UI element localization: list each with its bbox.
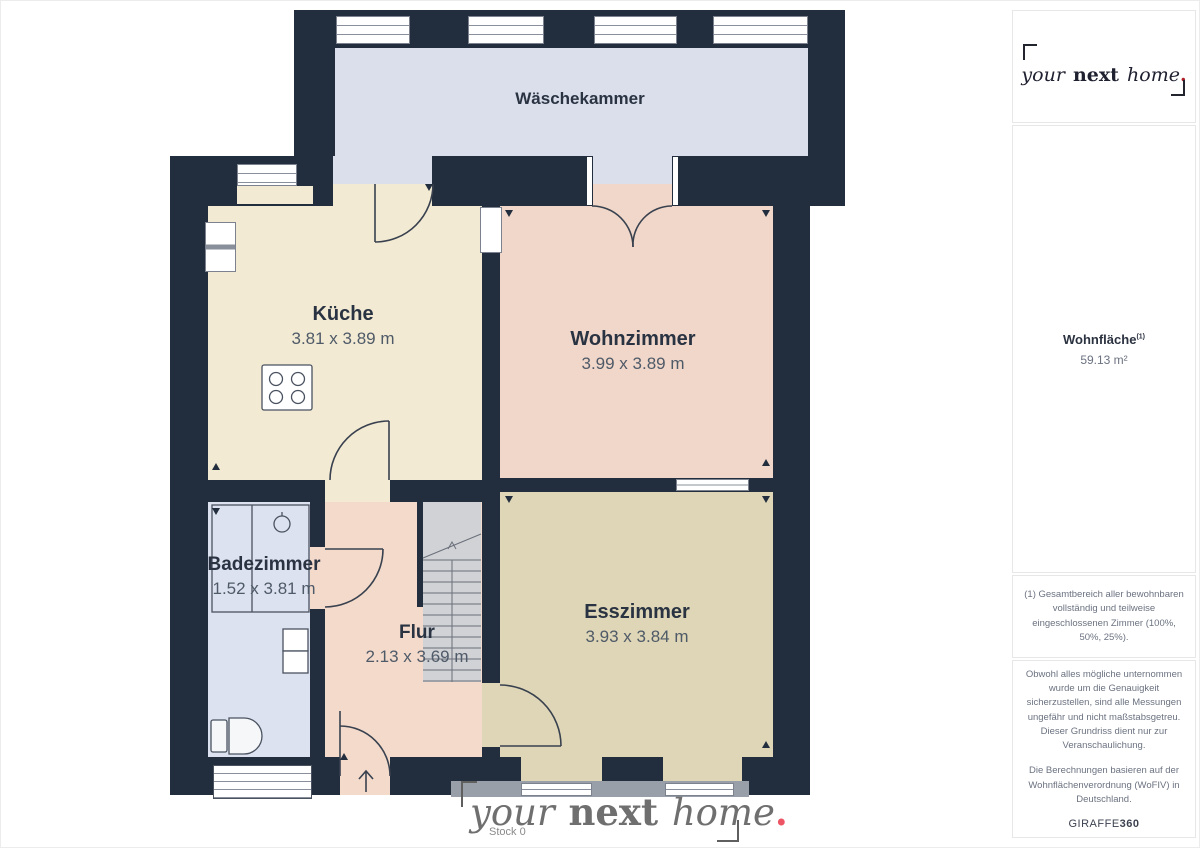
- room-floor-waeschekammer: [320, 30, 820, 160]
- room-floor-esszimmer: [490, 485, 780, 775]
- logo-bracket-topleft: [1023, 44, 1037, 60]
- disclaimer-text-1: Obwohl alles mögliche unternommen wurde …: [1013, 668, 1195, 754]
- window-waesche-2: [468, 16, 544, 44]
- door-jamb-left: [586, 156, 593, 206]
- wall-east-main: [773, 156, 810, 795]
- opening-waesche-kueche: [333, 156, 432, 184]
- logo-bracket-bottomright: [1171, 80, 1185, 96]
- opening-entrance: [340, 757, 390, 795]
- wall-west-waeschekammer: [294, 10, 335, 156]
- opening-ess-window-1: [521, 757, 602, 781]
- opening-kueche-flur: [325, 480, 390, 502]
- logo-bracket-bottomright: [717, 820, 739, 842]
- exterior-steps: [213, 765, 312, 799]
- living-area-value: 59.13 m²: [1013, 353, 1195, 367]
- sidebar-footnote-card: (1) Gesamtbereich aller bewohnbaren voll…: [1012, 575, 1196, 658]
- window-waesche-4: [713, 16, 808, 44]
- brand-logo: your next home.: [1013, 64, 1195, 86]
- room-floor-wohnzimmer: [490, 180, 785, 485]
- door-jamb-right: [672, 156, 679, 206]
- opening-waesche-wohnzimmer: [592, 156, 672, 184]
- living-area-label: Wohnfläche(1): [1013, 332, 1195, 347]
- wall-divider-bad-flur: [310, 502, 325, 757]
- window-waesche-3: [594, 16, 677, 44]
- room-floor-badezimmer: [190, 495, 315, 765]
- sidebar-disclaimer-card: Obwohl alles mögliche unternommen wurde …: [1012, 660, 1196, 838]
- window-divider-slot: [480, 207, 502, 253]
- window-wohn-ess-pass: [676, 479, 749, 491]
- floorplan-page: Wäschekammer Küche 3.81 x 3.89 m Wohnzim…: [0, 0, 1200, 848]
- opening-waesche-wohnzimmer-lower: [592, 184, 672, 206]
- opening-ess-window-2: [663, 757, 742, 781]
- footnote-text: (1) Gesamtbereich aller bewohnbaren voll…: [1013, 588, 1195, 645]
- opening-flur-esszimmer: [482, 683, 500, 747]
- sidebar-area-card: Wohnfläche(1) 59.13 m²: [1012, 125, 1196, 573]
- floor-level-label: Stock 0: [489, 826, 526, 838]
- sidebar-logo-card: your next home.: [1012, 10, 1196, 123]
- window-waesche-1: [336, 16, 410, 44]
- staircase: [423, 502, 481, 682]
- wall-west-main: [170, 156, 208, 795]
- wall-east-waeschekammer: [808, 10, 845, 156]
- opening-bad-flur: [310, 547, 325, 609]
- window-kueche-west: [205, 222, 236, 272]
- opening-waesche-kueche-lower: [333, 184, 432, 206]
- giraffe360-brand: GIRAFFE360: [1013, 818, 1195, 830]
- disclaimer-text-2: Die Berechnungen basieren auf der Wohnfl…: [1013, 764, 1195, 807]
- window-kueche-north-sill: [237, 186, 313, 204]
- window-kueche-north: [237, 164, 297, 186]
